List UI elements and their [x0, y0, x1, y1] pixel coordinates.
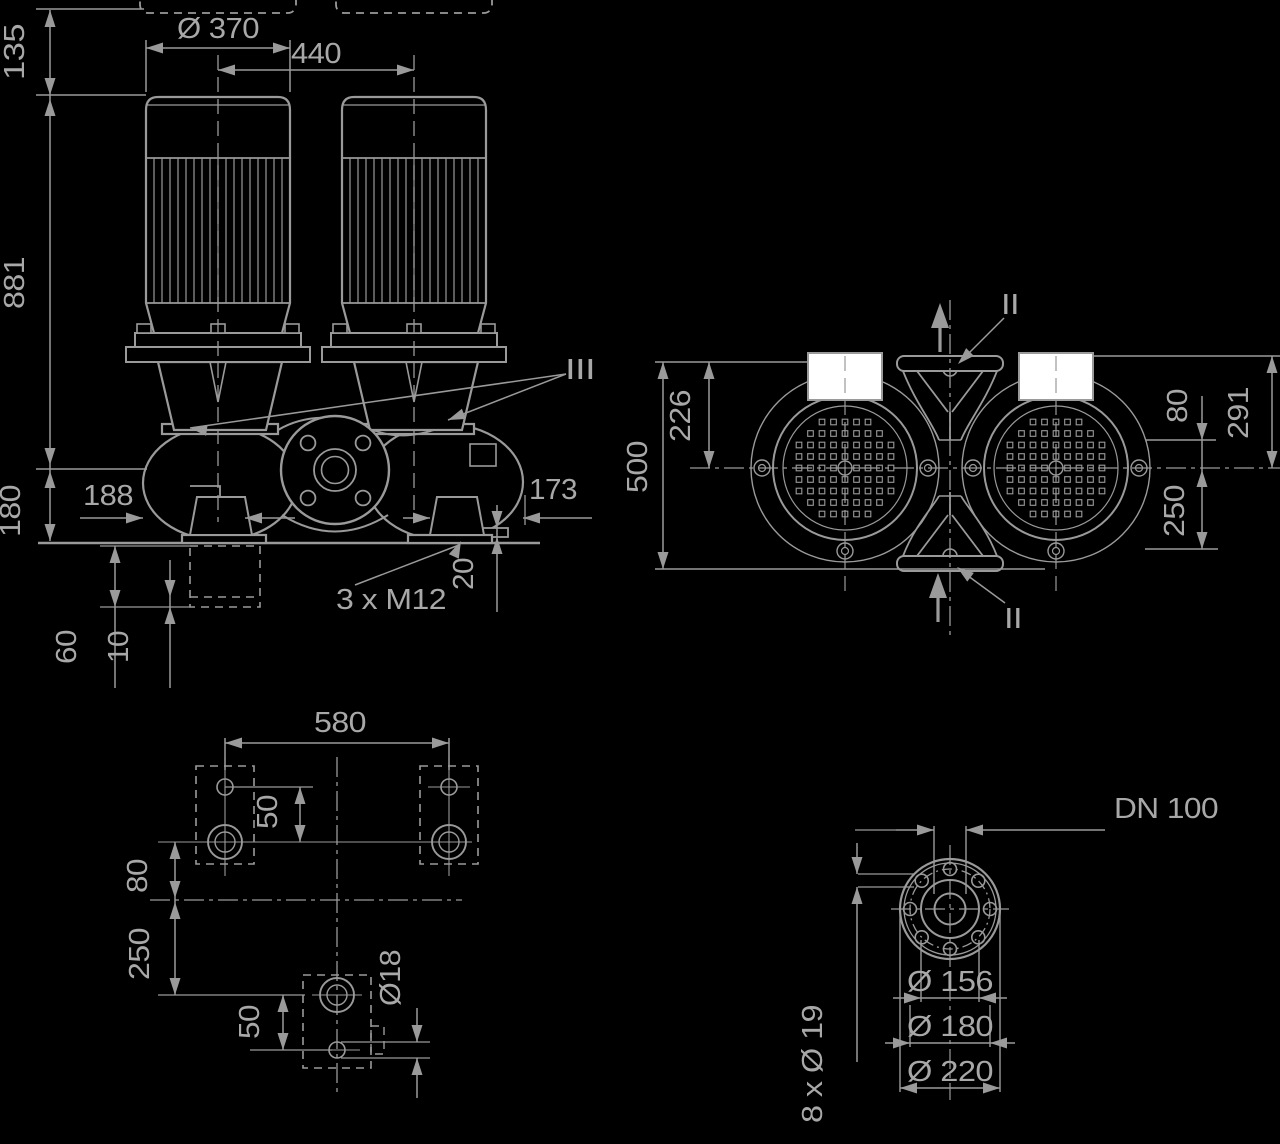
top-dimensions-arrowhead — [704, 451, 715, 468]
foundation-dimensions-arrowhead — [170, 881, 181, 898]
top-fan-left-mesh-hole — [831, 442, 837, 448]
top-piping-line — [917, 371, 948, 412]
dim-front-188: 188 — [83, 480, 133, 512]
top-fan-left-mesh-hole — [854, 500, 860, 506]
top-piping-path — [903, 496, 939, 556]
dim-top-80: 80 — [1162, 389, 1194, 423]
section-mark-ii-bottom: II — [1004, 603, 1022, 635]
front-dimensions-arrowhead — [110, 590, 121, 607]
top-fan-right-mesh-hole — [1099, 442, 1105, 448]
dim-flange-dia180: Ø 180 — [907, 1011, 993, 1043]
top-fan-left-mesh-hole — [865, 442, 871, 448]
top-fan-right-mesh-hole — [1007, 442, 1013, 448]
top-piping-line — [952, 371, 983, 412]
dim-flange-8xdia19: 8 x Ø 19 — [797, 1005, 829, 1123]
flange-dimensions-arrowhead — [966, 825, 983, 836]
top-fan-right-mesh-hole — [1076, 431, 1082, 437]
front-dimensions-arrowhead — [146, 43, 163, 54]
foundation-dimensions-arrowhead — [278, 1033, 289, 1050]
flange-bolt-hole — [972, 874, 985, 887]
top-fan-left-mesh-hole — [854, 419, 860, 425]
top-fan-right-mesh-hole — [1065, 477, 1071, 483]
top-fan-right-mesh-hole — [1088, 442, 1094, 448]
top-fan-right-mesh-hole — [1076, 488, 1082, 494]
front-center-flange-circle — [281, 416, 389, 524]
front-base-rect — [190, 546, 260, 607]
top-dimensions-arrowhead — [1197, 470, 1208, 487]
dim-top-500: 500 — [622, 441, 654, 493]
foundation-dimensions-arrowhead — [432, 738, 449, 749]
front-dimensions-arrowhead — [45, 10, 56, 27]
front-center-flange — [281, 416, 389, 524]
front-dimensions-arrowhead — [45, 99, 56, 116]
top-fan-right-mesh-hole — [1007, 488, 1013, 494]
front-dimensions-arrowhead — [397, 65, 414, 76]
dim-flange-dn100: DN 100 — [1114, 793, 1218, 825]
top-fan-left-mesh-hole — [796, 488, 802, 494]
front-dimensions-arrowhead — [45, 524, 56, 541]
top-fan-left-mesh-hole — [819, 431, 825, 437]
top-fan-right-mesh-hole — [1065, 500, 1071, 506]
foundation-dimensions-arrowhead — [278, 995, 289, 1012]
dim-found-80: 80 — [122, 859, 154, 893]
front-dimensions-arrowhead — [126, 513, 143, 524]
top-fan-right-mesh-hole — [1030, 511, 1036, 517]
top-fan-right-mesh-hole — [1030, 454, 1036, 460]
top-fan-right-mesh-hole — [1042, 488, 1048, 494]
foundation-dimensions-arrowhead — [412, 1025, 423, 1042]
top-fan-right-mesh-hole — [1042, 454, 1048, 460]
top-fan-left-mesh-hole — [819, 454, 825, 460]
dim-front-173: 173 — [529, 474, 577, 506]
top-dimensions-arrowhead — [1267, 451, 1278, 468]
top-fan-right-mesh-hole — [1019, 477, 1025, 483]
dim-found-580: 580 — [314, 707, 366, 739]
pump-dimensional-drawing: 135 Ø 370 440 881 180 188 173 20 3 x M12… — [0, 0, 1280, 1144]
top-flow-arrows-path — [929, 573, 947, 598]
top-fan-right-mesh-hole — [1088, 500, 1094, 506]
dim-flange-dia156: Ø 156 — [907, 966, 993, 998]
top-fan-left-mesh-hole — [808, 454, 814, 460]
top-fan-right-mesh-hole — [1088, 454, 1094, 460]
top-fan-left-mesh-hole — [796, 477, 802, 483]
foundation-dimensions-arrowhead — [170, 902, 181, 919]
top-fan-right-mesh-hole — [1030, 442, 1036, 448]
front-dimensions-arrowhead — [45, 471, 56, 488]
top-fan-left-mesh-hole — [854, 442, 860, 448]
flange-bolt-hole — [915, 874, 928, 887]
top-fan-left-mesh-hole — [831, 419, 837, 425]
front-dimensions-arrowhead — [165, 607, 176, 624]
front-dimensions-arrowhead — [218, 65, 235, 76]
top-dimensions-arrowhead — [1197, 532, 1208, 549]
top-fan-right-mesh-hole — [1065, 442, 1071, 448]
top-fan-left-mesh-hole — [854, 488, 860, 494]
section-mark-iii: III — [565, 354, 595, 386]
foundation-dimensions-arrowhead — [295, 825, 306, 842]
top-fan-right-mesh-hole — [1065, 454, 1071, 460]
top-fan-left-mesh-hole — [808, 488, 814, 494]
top-fan-right-mesh-hole — [1076, 511, 1082, 517]
top-fan-right-mesh-hole — [1065, 511, 1071, 517]
top-fan-left-mesh-hole — [808, 477, 814, 483]
drawing-geometry — [36, 0, 1280, 1100]
front-motor-left-rect — [140, 0, 296, 13]
foundation-anchor-top-left — [196, 757, 254, 876]
top-fan-right-mesh-hole — [1007, 454, 1013, 460]
top-fan-left-mesh-hole — [819, 477, 825, 483]
top-fan-left-mesh-hole — [865, 488, 871, 494]
top-piping-path — [903, 371, 939, 440]
front-dimensions-arrowhead — [492, 537, 503, 554]
foundation-dimensions-arrowhead — [170, 842, 181, 859]
front-dimensions — [36, 9, 592, 688]
front-dimensions-line — [355, 545, 459, 585]
foundation-dimensions-arrowhead — [170, 978, 181, 995]
top-dimensions-arrowhead — [658, 362, 669, 379]
top-fan-left-mesh-hole — [819, 488, 825, 494]
dim-front-60: 60 — [51, 630, 83, 664]
top-fan-right-mesh-hole — [1042, 477, 1048, 483]
front-base-rect — [408, 535, 492, 543]
front-dimensions-arrowhead — [492, 511, 503, 528]
front-motor-left-rect — [285, 324, 299, 333]
top-fan-right-mesh-hole — [1099, 454, 1105, 460]
top-fan-left-mesh-hole — [831, 500, 837, 506]
top-fan-right-mesh-hole — [1042, 431, 1048, 437]
front-dimensions-arrowhead — [110, 546, 121, 563]
top-piping-path — [961, 371, 997, 440]
top-fan-left-mesh-hole — [877, 477, 883, 483]
top-fan-right-mesh-hole — [1030, 488, 1036, 494]
top-fan-right-mesh-hole — [1065, 431, 1071, 437]
top-fan-right-mesh-hole — [1019, 442, 1025, 448]
top-dimensions-arrowhead — [1267, 356, 1278, 373]
front-base-path — [430, 497, 484, 535]
front-dimensions-arrowhead — [413, 513, 430, 524]
top-fan-left-mesh-hole — [865, 419, 871, 425]
top-fan-left-mesh-hole — [831, 511, 837, 517]
top-fan-right-mesh-hole — [1030, 419, 1036, 425]
foundation-centerlines — [150, 757, 472, 1094]
top-fan-right-mesh-hole — [1088, 477, 1094, 483]
dim-flange-dia220: Ø 220 — [907, 1056, 993, 1088]
top-dimensions-arrowhead — [704, 362, 715, 379]
top-flow-arrows-path — [931, 303, 949, 328]
top-fan-left-mesh-hole — [877, 442, 883, 448]
top-fan-left-mesh-hole — [819, 500, 825, 506]
top-fan-left-mesh-hole — [865, 511, 871, 517]
foundation-anchor-bottom-rect — [371, 1026, 384, 1054]
top-fan-right-mesh-hole — [1030, 500, 1036, 506]
top-fan-right-mesh-hole — [1076, 419, 1082, 425]
top-fan-right-mesh-hole — [1065, 419, 1071, 425]
front-motor-right-rect — [333, 324, 347, 333]
top-fan-right-mesh-hole — [1042, 442, 1048, 448]
flange-dimensions-arrowhead — [852, 857, 863, 874]
section-mark-ii-top: II — [1001, 289, 1019, 321]
top-fan-right-mesh-hole — [1076, 500, 1082, 506]
top-fan-left-mesh-hole — [796, 454, 802, 460]
top-fan-right-mesh-hole — [1030, 431, 1036, 437]
flange-dimensions — [852, 825, 1106, 1094]
top-fan-left-mesh-hole — [888, 488, 894, 494]
top-fan-right-mesh-hole — [1099, 477, 1105, 483]
dimension-labels: 135 Ø 370 440 881 180 188 173 20 3 x M12… — [0, 13, 1255, 1123]
front-dimensions-arrowhead — [45, 78, 56, 95]
top-fan-left-mesh-hole — [854, 477, 860, 483]
top-fan-right-mesh-hole — [1042, 500, 1048, 506]
top-fan-left-mesh-hole — [865, 500, 871, 506]
top-fan-left-mesh-hole — [819, 419, 825, 425]
top-fan-right-mesh-hole — [1065, 488, 1071, 494]
top-fan-left-mesh-hole — [877, 500, 883, 506]
front-dimensions-arrowhead — [165, 580, 176, 597]
top-dimensions-arrowhead — [658, 552, 669, 569]
top-fan-right-mesh-hole — [1030, 477, 1036, 483]
top-fan-left-mesh-hole — [819, 511, 825, 517]
dim-front-180: 180 — [0, 485, 27, 537]
front-motor-left-rect — [137, 324, 151, 333]
dim-front-135: 135 — [0, 24, 31, 80]
front-dimensions-arrowhead — [45, 448, 56, 465]
dim-found-dia18: Ø18 — [375, 950, 407, 1006]
front-dimensions-arrowhead — [273, 43, 290, 54]
top-fan-right-mesh-hole — [1076, 477, 1082, 483]
top-fan-left-mesh-hole — [865, 454, 871, 460]
top-fan-left-mesh-hole — [819, 442, 825, 448]
dim-front-440: 440 — [291, 38, 341, 70]
dim-front-20: 20 — [448, 558, 480, 590]
top-fan-left-mesh-hole — [877, 488, 883, 494]
front-motor-right-rect — [481, 324, 495, 333]
top-fan-right-mesh-hole — [1019, 431, 1025, 437]
foundation-dimensions-arrowhead — [295, 787, 306, 804]
top-fan-left-mesh-hole — [831, 488, 837, 494]
dim-front-dia370: Ø 370 — [177, 13, 259, 45]
foundation-dimensions-arrowhead — [412, 1058, 423, 1075]
top-fan-left-mesh-hole — [854, 431, 860, 437]
top-fan-right-mesh-hole — [1076, 442, 1082, 448]
top-fan-left-mesh-hole — [865, 477, 871, 483]
dim-top-250: 250 — [1159, 485, 1191, 537]
top-fan-left-mesh-hole — [808, 500, 814, 506]
top-fan-left-mesh-hole — [831, 454, 837, 460]
top-fan-right-mesh-hole — [1007, 477, 1013, 483]
dim-front-881: 881 — [0, 257, 31, 309]
flange-dimensions-arrowhead — [852, 887, 863, 904]
dim-front-3xM12: 3 x M12 — [336, 584, 446, 616]
top-fan-right-mesh-hole — [1042, 511, 1048, 517]
top-fan-right-mesh-hole — [1099, 488, 1105, 494]
front-pump-body-rect — [470, 444, 496, 466]
foundation-anchor-top-right — [420, 757, 478, 876]
foundation-dimensions-arrowhead — [225, 738, 242, 749]
front-base-path — [190, 497, 252, 535]
top-dimensions-arrowhead — [1197, 423, 1208, 440]
top-fan-right-mesh-hole — [1088, 488, 1094, 494]
front-base-rect — [182, 535, 266, 543]
top-fan-left-mesh-hole — [888, 477, 894, 483]
top-fan-right-mesh-hole — [1088, 431, 1094, 437]
dim-front-10: 10 — [103, 631, 135, 663]
top-fan-left-mesh-hole — [865, 431, 871, 437]
flange-dimensions-arrowhead — [917, 825, 934, 836]
flange-bolt-hole — [972, 931, 985, 944]
top-fan-left-mesh-hole — [808, 431, 814, 437]
dim-top-226: 226 — [665, 390, 697, 442]
top-fan-left-mesh-hole — [831, 431, 837, 437]
top-piping-path — [961, 496, 997, 556]
top-fan-right-mesh-hole — [1042, 419, 1048, 425]
top-fan-right-mesh-hole — [1076, 454, 1082, 460]
foundation-anchor-bottom — [303, 975, 384, 1068]
front-motor-right-rect — [336, 0, 492, 13]
top-fan-left-mesh-hole — [888, 442, 894, 448]
dim-top-291: 291 — [1223, 387, 1255, 439]
top-fan-right-mesh-hole — [1019, 454, 1025, 460]
top-fan-left-mesh-hole — [888, 454, 894, 460]
dim-found-50-bottom: 50 — [234, 1005, 266, 1039]
top-fan-left-mesh-hole — [854, 454, 860, 460]
top-fan-left-mesh-hole — [808, 442, 814, 448]
top-fan-left-mesh-hole — [877, 454, 883, 460]
top-fan-left-mesh-hole — [796, 442, 802, 448]
top-fan-left-mesh-hole — [854, 511, 860, 517]
top-fan-left-mesh-hole — [877, 431, 883, 437]
dim-found-250: 250 — [124, 928, 156, 980]
top-fan-right-mesh-hole — [1019, 488, 1025, 494]
top-fan-left-mesh-hole — [888, 465, 894, 471]
top-fan-left-mesh-hole — [831, 477, 837, 483]
top-fan-right-mesh-hole — [1019, 500, 1025, 506]
technical-drawing-canvas: 135 Ø 370 440 881 180 188 173 20 3 x M12… — [0, 0, 1280, 1144]
dim-found-50-top: 50 — [252, 795, 284, 829]
